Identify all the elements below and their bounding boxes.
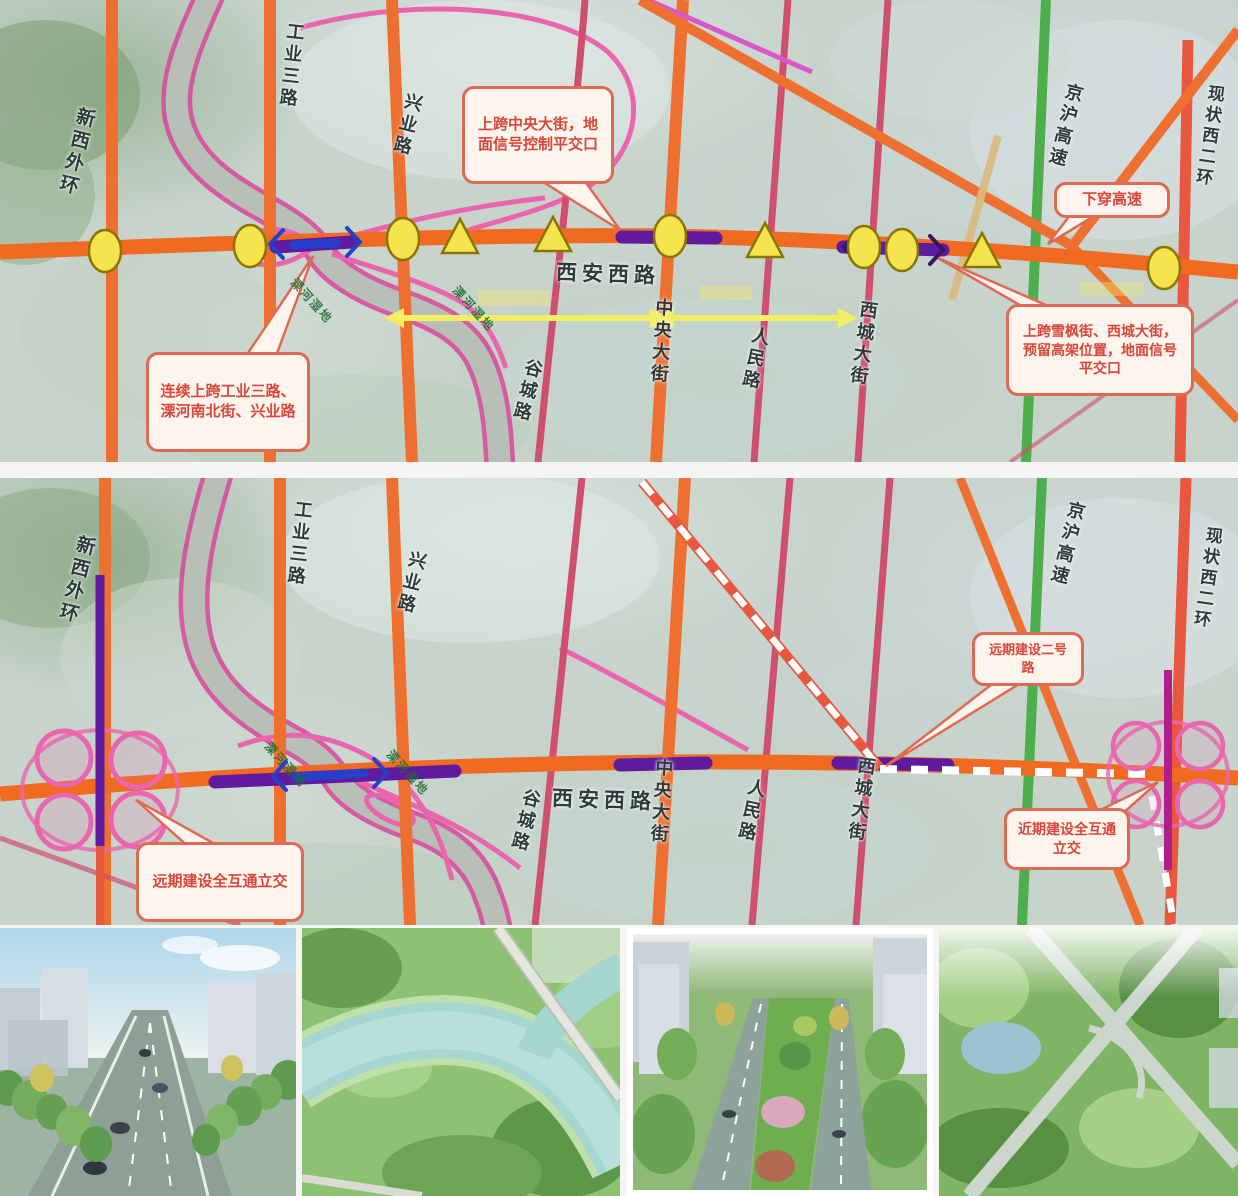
callout-underpass-expressway: 下穿高速: [1054, 182, 1170, 218]
photo-boulevard-rendering: [627, 928, 933, 1196]
photo-river-bridge-rendering: [302, 928, 620, 1196]
road-planning-board: 新西外环 工业三路 兴业路 谷城路 中央大街 人民路 西城大街 京沪高速 现状西…: [0, 0, 1238, 1196]
callout-overpass-zhongyang: 上跨中央大街，地面信号控制平交口: [462, 86, 614, 184]
main-road-label: 西安西路: [556, 256, 661, 290]
callout-overpass-reserved-viaduct: 上跨雪枫街、西城大街，预留高架位置，地面信号平交口: [1006, 304, 1194, 396]
map-panel-phase2: 新西外环 工业三路 兴业路 谷城路 中央大街 人民路 西城大街 京沪高速 现状西…: [0, 478, 1238, 925]
river-bridge-art: [302, 928, 620, 1196]
photo-street-rendering: [0, 928, 296, 1196]
interchange-art: [939, 928, 1238, 1196]
callout-nearterm-interchange: 近期建设全互通立交: [1004, 808, 1130, 870]
boulevard-art: [633, 934, 927, 1190]
callout-longterm-interchange: 远期建设全互通立交: [136, 842, 304, 922]
photo-interchange-rendering: [939, 928, 1238, 1196]
main-road-label: 西安西路: [552, 782, 657, 816]
street-rendering-art: [0, 928, 296, 1196]
callout-continuous-overpass: 连续上跨工业三路、溧河南北街、兴业路: [146, 352, 310, 452]
map-panel-phase1: 新西外环 工业三路 兴业路 谷城路 中央大街 人民路 西城大街 京沪高速 现状西…: [0, 0, 1238, 462]
callout-planned-road-no2: 远期建设二号路: [972, 632, 1084, 686]
